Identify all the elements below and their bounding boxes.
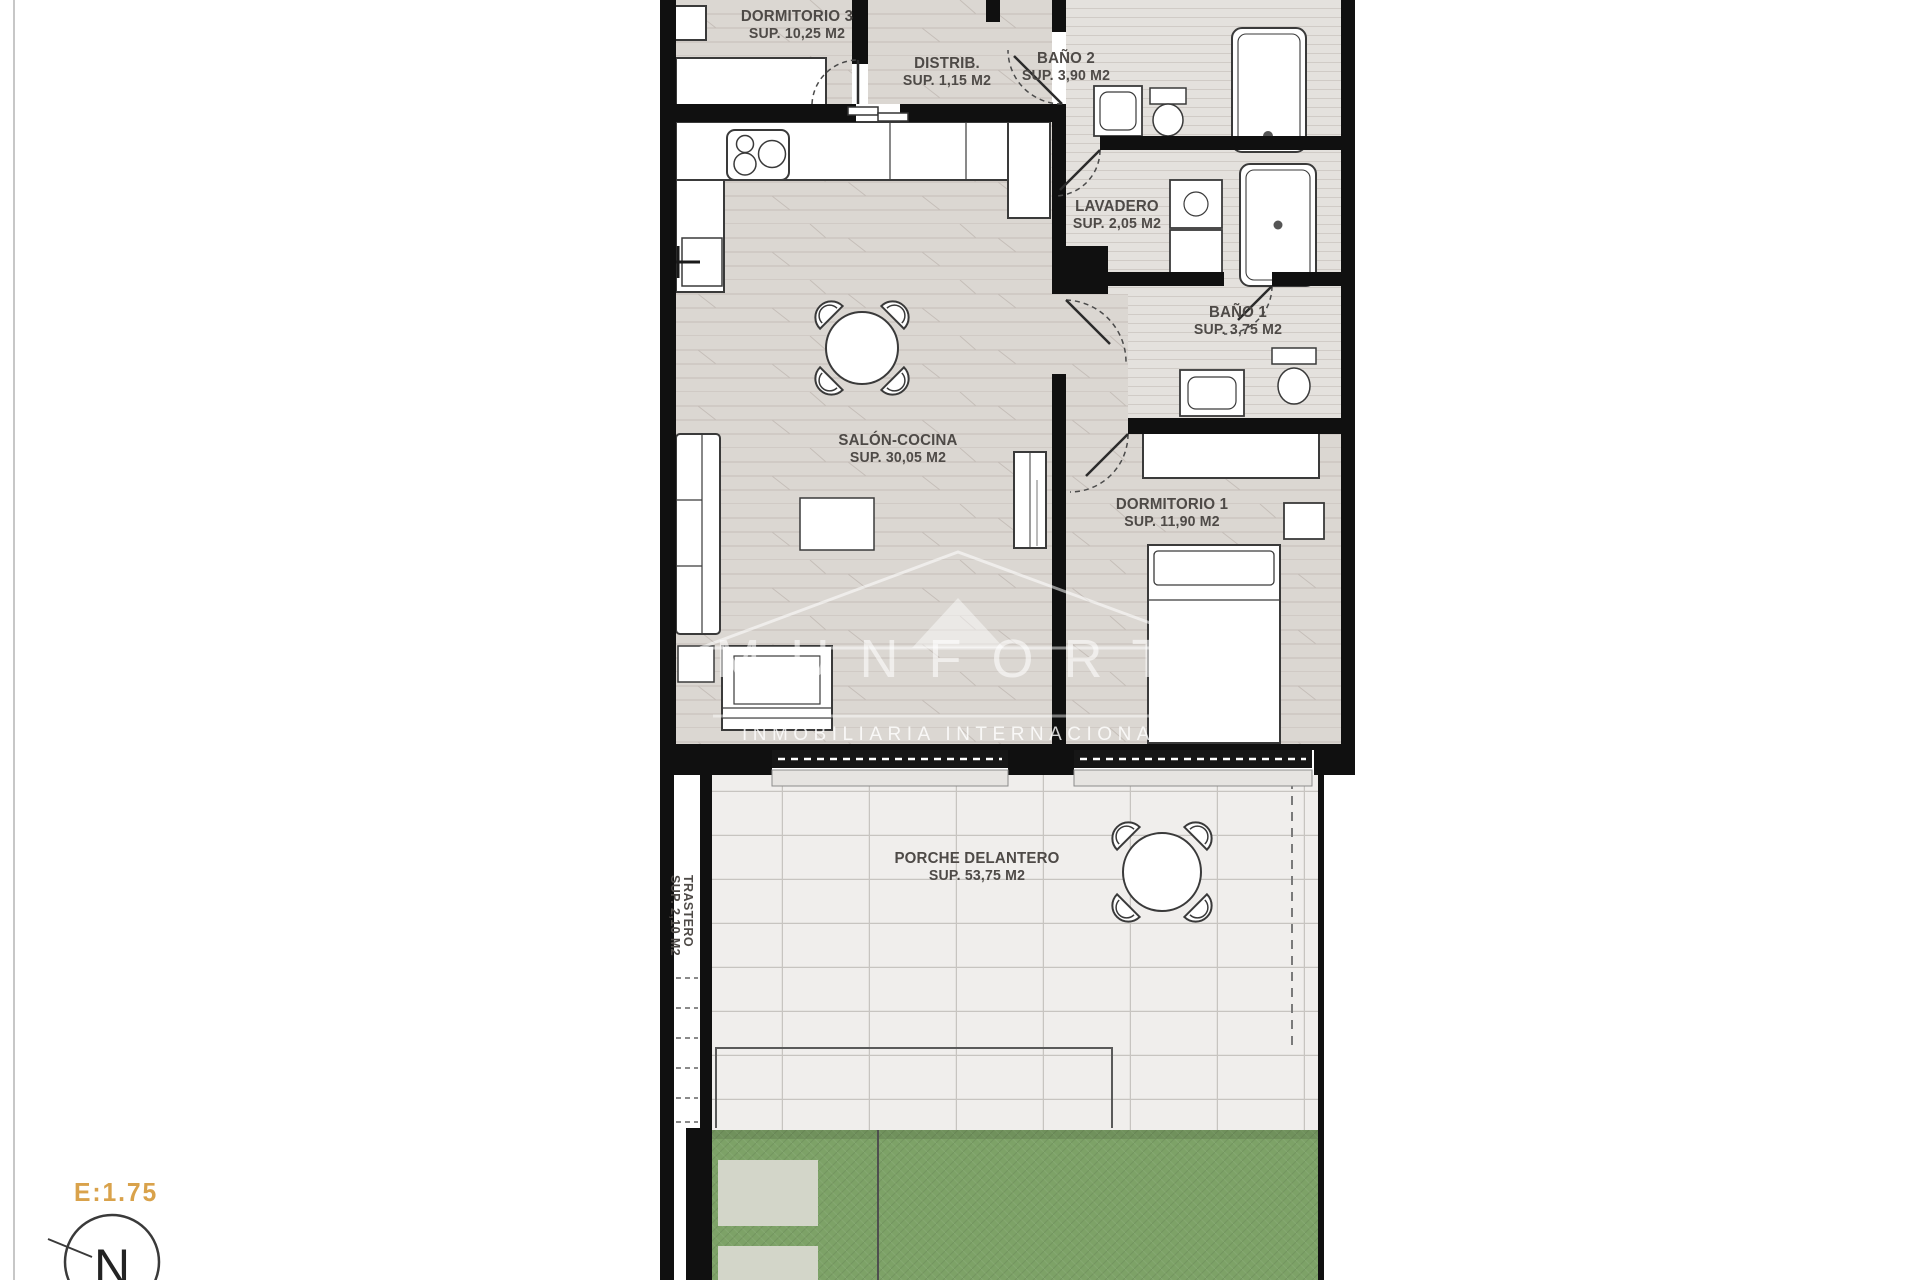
- room-name: PORCHE DELANTERO: [894, 850, 1059, 867]
- shower-tray-icon: [1240, 164, 1316, 286]
- room-label-lavadero: LAVADERO SUP. 2,05 M2: [1073, 198, 1161, 232]
- room-area: SUP. 10,25 M2: [741, 25, 853, 42]
- garden-stepping-stones: [718, 1160, 818, 1280]
- room-name: LAVADERO: [1073, 198, 1161, 215]
- bano2-toilet-icon: [1150, 88, 1186, 136]
- room-name: BAÑO 1: [1194, 304, 1282, 321]
- bano2-washbasin-icon: [1094, 86, 1142, 136]
- room-label-bano2: BAÑO 2 SUP. 3,90 M2: [1022, 50, 1110, 84]
- bano1-washbasin-icon: [1180, 370, 1244, 416]
- watermark-brand: MUNFORT: [686, 628, 1195, 690]
- porch-table-set: [1106, 816, 1219, 929]
- stove-icon: [727, 130, 789, 180]
- room-name: TRASTERO: [681, 875, 694, 956]
- room-label-porche-delantero: PORCHE DELANTERO SUP. 53,75 M2: [894, 850, 1059, 884]
- room-area: SUP. 53,75 M2: [894, 867, 1059, 884]
- watermark-subtitle: INMOBILIARIA INTERNACIONAL: [737, 724, 1171, 746]
- room-area: SUP. 11,90 M2: [1116, 513, 1228, 530]
- side-table: [800, 498, 874, 550]
- floorplan-page: DORMITORIO 3 SUP. 10,25 M2 DISTRIB. SUP.…: [0, 0, 1920, 1280]
- room-name: BAÑO 2: [1022, 50, 1110, 67]
- room-name: SALÓN-COCINA: [838, 432, 957, 449]
- room-name: DISTRIB.: [903, 55, 991, 72]
- room-area: SUP. 3,90 M2: [1022, 67, 1110, 84]
- tv-unit: [1014, 452, 1046, 548]
- room-label-distribuidor: DISTRIB. SUP. 1,15 M2: [903, 55, 991, 89]
- room-label-trastero: TRASTERO SUP. 2,10 M2: [668, 875, 694, 956]
- room-area: SUP. 3,75 M2: [1194, 321, 1282, 338]
- sofa: [676, 434, 720, 634]
- room-area: SUP. 1,15 M2: [903, 72, 991, 89]
- room-name: DORMITORIO 1: [1116, 496, 1228, 513]
- bathtub-icon: [1232, 28, 1306, 152]
- room-label-bano1: BAÑO 1 SUP. 3,75 M2: [1194, 304, 1282, 338]
- room-label-salon-cocina: SALÓN-COCINA SUP. 30,05 M2: [838, 432, 957, 466]
- scale-label: E:1.75: [74, 1177, 158, 1208]
- north-letter: N: [94, 1238, 130, 1280]
- room-area: SUP. 30,05 M2: [838, 449, 957, 466]
- room-label-dormitorio3: DORMITORIO 3 SUP. 10,25 M2: [741, 8, 853, 42]
- room-area: SUP. 2,10 M2: [668, 875, 681, 956]
- room-area: SUP. 2,05 M2: [1073, 215, 1161, 232]
- room-label-dormitorio1: DORMITORIO 1 SUP. 11,90 M2: [1116, 496, 1228, 530]
- room-name: DORMITORIO 3: [741, 8, 853, 25]
